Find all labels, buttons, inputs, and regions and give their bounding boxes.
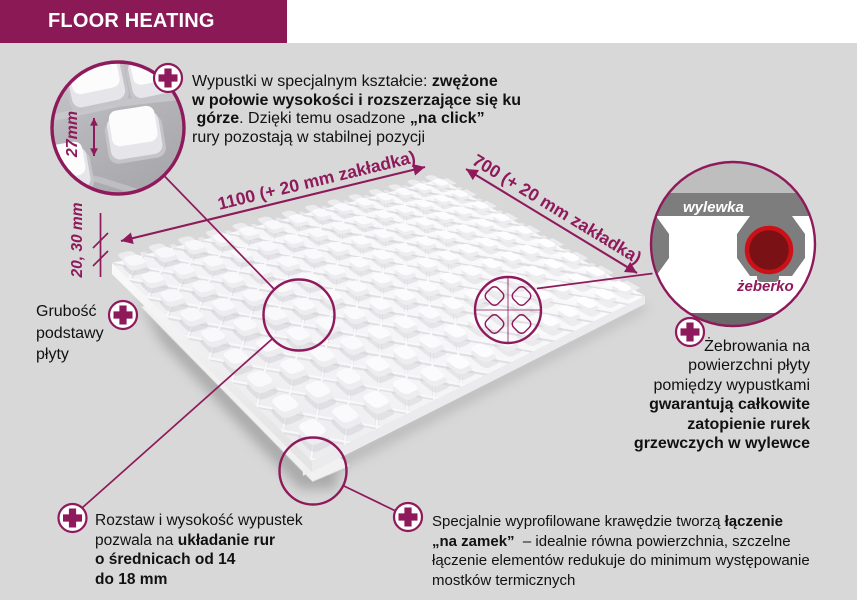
svg-text:27mm: 27mm — [64, 111, 81, 158]
svg-text:wylewka: wylewka — [683, 199, 744, 216]
svg-text:20, 30 mm: 20, 30 mm — [69, 202, 86, 278]
svg-text:żeberko: żeberko — [736, 278, 794, 295]
